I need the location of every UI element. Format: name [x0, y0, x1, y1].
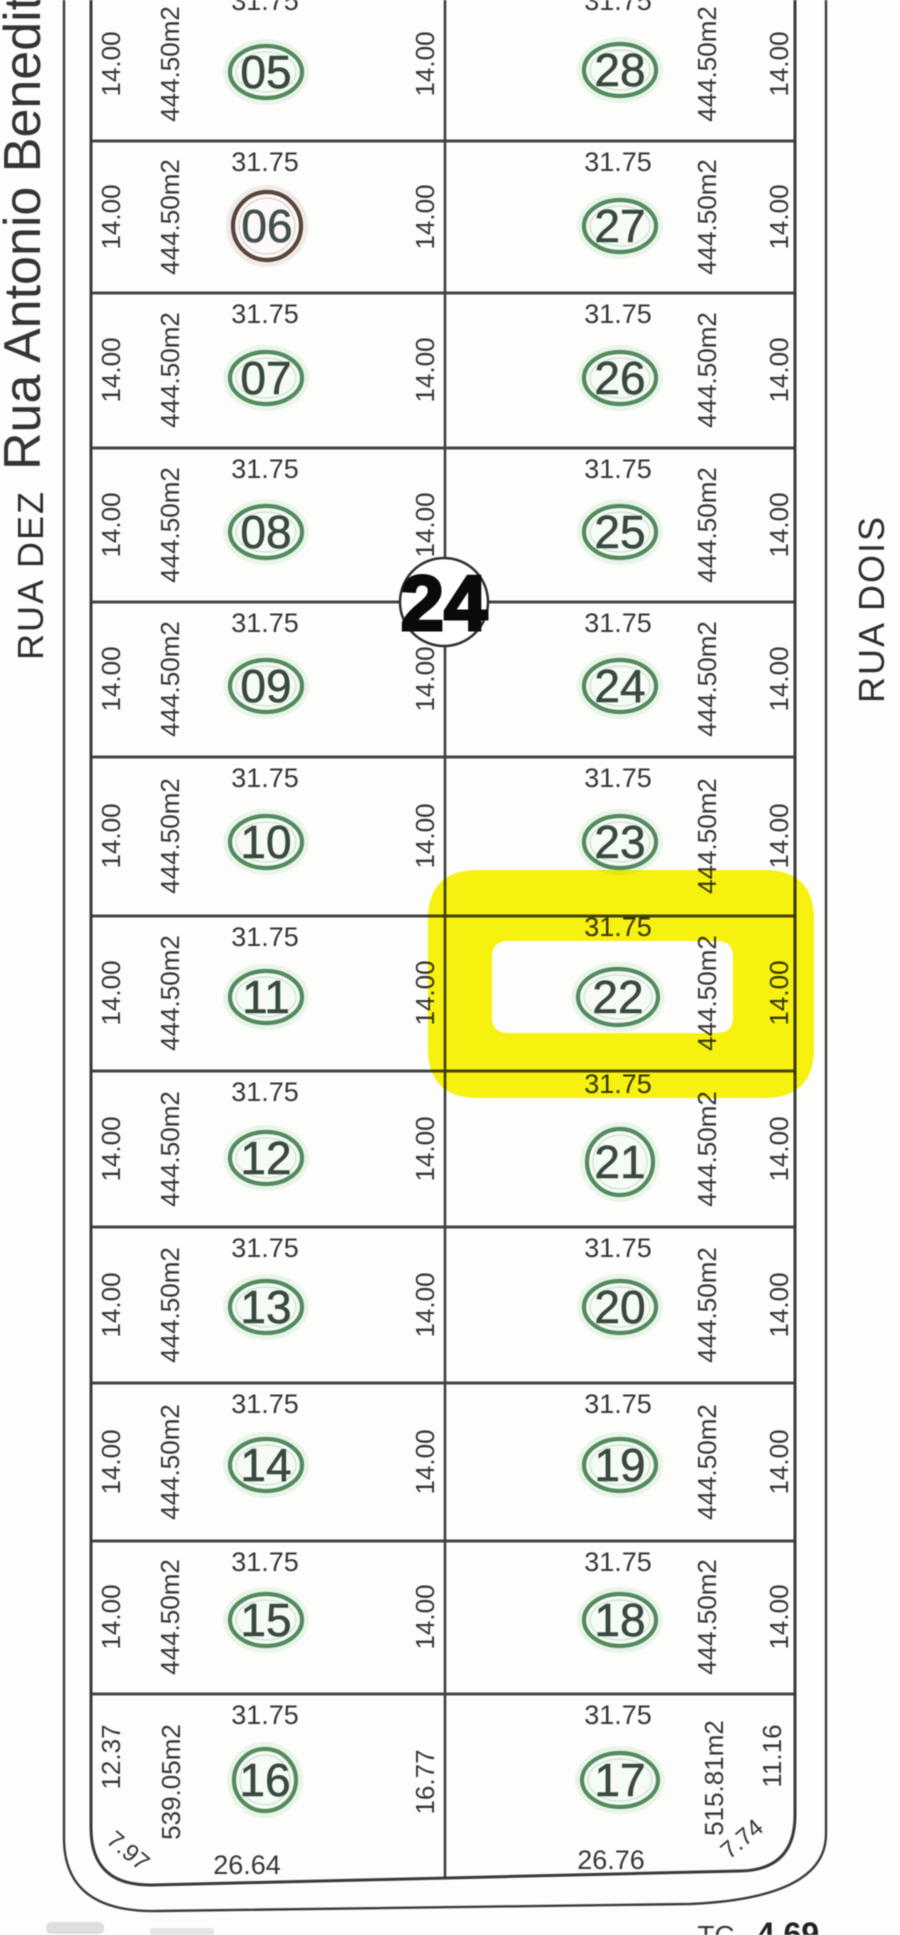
svg-text:31.75: 31.75 — [584, 454, 652, 484]
svg-text:31.75: 31.75 — [231, 147, 299, 177]
svg-text:31.75: 31.75 — [584, 1389, 652, 1419]
svg-text:RUA DEZ: RUA DEZ — [10, 490, 51, 660]
svg-text:Rua Antonio Benedito: Rua Antonio Benedito — [0, 0, 52, 470]
svg-text:26.76: 26.76 — [577, 1845, 645, 1875]
svg-text:31.75: 31.75 — [584, 763, 652, 793]
svg-text:12: 12 — [240, 1132, 291, 1184]
svg-text:444.50m2: 444.50m2 — [155, 1559, 185, 1675]
svg-text:27: 27 — [594, 200, 645, 252]
svg-text:18: 18 — [594, 1594, 645, 1646]
svg-text:15: 15 — [240, 1594, 291, 1646]
svg-text:23: 23 — [594, 816, 645, 868]
svg-text:14.00: 14.00 — [96, 1584, 126, 1649]
svg-text:25: 25 — [594, 506, 645, 558]
svg-text:31.75: 31.75 — [231, 0, 299, 16]
svg-text:20: 20 — [594, 1281, 645, 1333]
svg-text:14.00: 14.00 — [410, 803, 440, 868]
svg-text:16.77: 16.77 — [410, 1749, 440, 1814]
svg-text:14.00: 14.00 — [764, 184, 794, 249]
svg-text:26.64: 26.64 — [213, 1850, 281, 1880]
svg-text:444.50m2: 444.50m2 — [155, 1091, 185, 1207]
svg-text:14.00: 14.00 — [410, 184, 440, 249]
svg-text:14.00: 14.00 — [96, 803, 126, 868]
svg-text:444.50m2: 444.50m2 — [692, 1091, 722, 1207]
svg-text:444.50m2: 444.50m2 — [692, 312, 722, 428]
svg-text:444.50m2: 444.50m2 — [155, 6, 185, 122]
svg-text:31.75: 31.75 — [231, 299, 299, 329]
svg-text:539.05m2: 539.05m2 — [156, 1724, 186, 1840]
svg-text:14.00: 14.00 — [410, 1429, 440, 1494]
svg-text:444.50m2: 444.50m2 — [155, 159, 185, 275]
svg-text:14.00: 14.00 — [764, 803, 794, 868]
svg-text:09: 09 — [240, 660, 291, 712]
svg-text:14.00: 14.00 — [764, 337, 794, 402]
svg-text:31.75: 31.75 — [231, 608, 299, 638]
svg-text:444.50m2: 444.50m2 — [155, 621, 185, 737]
svg-text:14.00: 14.00 — [96, 184, 126, 249]
svg-text:TC: TC — [697, 1920, 734, 1935]
svg-text:14.00: 14.00 — [96, 646, 126, 711]
svg-text:06: 06 — [241, 200, 292, 252]
svg-text:31.75: 31.75 — [231, 763, 299, 793]
svg-text:14: 14 — [240, 1439, 291, 1491]
svg-text:22: 22 — [592, 971, 643, 1023]
svg-text:14.00: 14.00 — [410, 646, 440, 711]
svg-text:14.00: 14.00 — [764, 646, 794, 711]
svg-text:444.50m2: 444.50m2 — [155, 1404, 185, 1520]
svg-text:444.50m2: 444.50m2 — [692, 1559, 722, 1675]
svg-text:4.69: 4.69 — [757, 1916, 819, 1935]
svg-text:26: 26 — [594, 352, 645, 404]
svg-text:05: 05 — [240, 46, 291, 98]
svg-text:444.50m2: 444.50m2 — [155, 467, 185, 583]
svg-text:24: 24 — [401, 559, 488, 647]
svg-text:14.00: 14.00 — [410, 1584, 440, 1649]
svg-text:31.75: 31.75 — [231, 922, 299, 952]
svg-text:14.00: 14.00 — [410, 492, 440, 557]
svg-text:444.50m2: 444.50m2 — [155, 935, 185, 1051]
svg-text:515.81m2: 515.81m2 — [699, 1720, 729, 1836]
svg-text:10: 10 — [240, 816, 291, 868]
svg-text:444.50m2: 444.50m2 — [692, 1247, 722, 1363]
svg-text:31.75: 31.75 — [231, 1233, 299, 1263]
svg-text:16: 16 — [239, 1754, 290, 1806]
svg-text:14.00: 14.00 — [96, 337, 126, 402]
svg-text:444.50m2: 444.50m2 — [155, 778, 185, 894]
svg-text:12.37: 12.37 — [96, 1724, 126, 1789]
svg-text:31.75: 31.75 — [584, 1233, 652, 1263]
svg-text:31.75: 31.75 — [584, 147, 652, 177]
svg-text:19: 19 — [594, 1439, 645, 1491]
svg-text:31.75: 31.75 — [584, 0, 652, 16]
svg-text:14.00: 14.00 — [764, 1429, 794, 1494]
svg-text:14.00: 14.00 — [410, 337, 440, 402]
svg-text:24: 24 — [594, 660, 645, 712]
svg-text:31.75: 31.75 — [231, 1700, 299, 1730]
svg-text:31.75: 31.75 — [231, 1547, 299, 1577]
svg-text:14.00: 14.00 — [96, 1272, 126, 1337]
svg-text:444.50m2: 444.50m2 — [692, 1404, 722, 1520]
svg-text:17: 17 — [594, 1754, 645, 1806]
svg-text:07: 07 — [240, 352, 291, 404]
svg-text:444.50m2: 444.50m2 — [155, 1247, 185, 1363]
svg-text:08: 08 — [240, 506, 291, 558]
svg-text:31.75: 31.75 — [584, 608, 652, 638]
svg-text:444.50m2: 444.50m2 — [692, 159, 722, 275]
svg-text:444.50m2: 444.50m2 — [155, 312, 185, 428]
svg-text:31.75: 31.75 — [231, 1077, 299, 1107]
svg-text:31.75: 31.75 — [584, 299, 652, 329]
svg-text:14.00: 14.00 — [764, 492, 794, 557]
svg-text:14.00: 14.00 — [764, 1272, 794, 1337]
svg-text:14.00: 14.00 — [96, 960, 126, 1025]
svg-text:14.00: 14.00 — [764, 1116, 794, 1181]
svg-text:444.50m2: 444.50m2 — [692, 6, 722, 122]
svg-text:14.00: 14.00 — [764, 1584, 794, 1649]
svg-text:RUA DOIS: RUA DOIS — [851, 515, 892, 703]
svg-text:14.00: 14.00 — [410, 1116, 440, 1181]
svg-text:14.00: 14.00 — [410, 1272, 440, 1337]
svg-text:28: 28 — [594, 44, 645, 96]
svg-text:14.00: 14.00 — [96, 1429, 126, 1494]
svg-text:11: 11 — [242, 971, 290, 1023]
svg-text:444.50m2: 444.50m2 — [692, 467, 722, 583]
svg-text:13: 13 — [240, 1281, 291, 1333]
svg-text:21: 21 — [594, 1136, 645, 1188]
svg-text:31.75: 31.75 — [231, 1389, 299, 1419]
svg-text:11.16: 11.16 — [757, 1724, 787, 1787]
svg-text:31.75: 31.75 — [584, 1547, 652, 1577]
svg-text:14.00: 14.00 — [410, 31, 440, 96]
svg-text:444.50m2: 444.50m2 — [692, 621, 722, 737]
svg-text:31.75: 31.75 — [584, 1700, 652, 1730]
svg-text:14.00: 14.00 — [764, 31, 794, 96]
svg-text:14.00: 14.00 — [96, 31, 126, 96]
svg-text:31.75: 31.75 — [231, 454, 299, 484]
svg-text:14.00: 14.00 — [96, 492, 126, 557]
svg-text:14.00: 14.00 — [96, 1116, 126, 1181]
